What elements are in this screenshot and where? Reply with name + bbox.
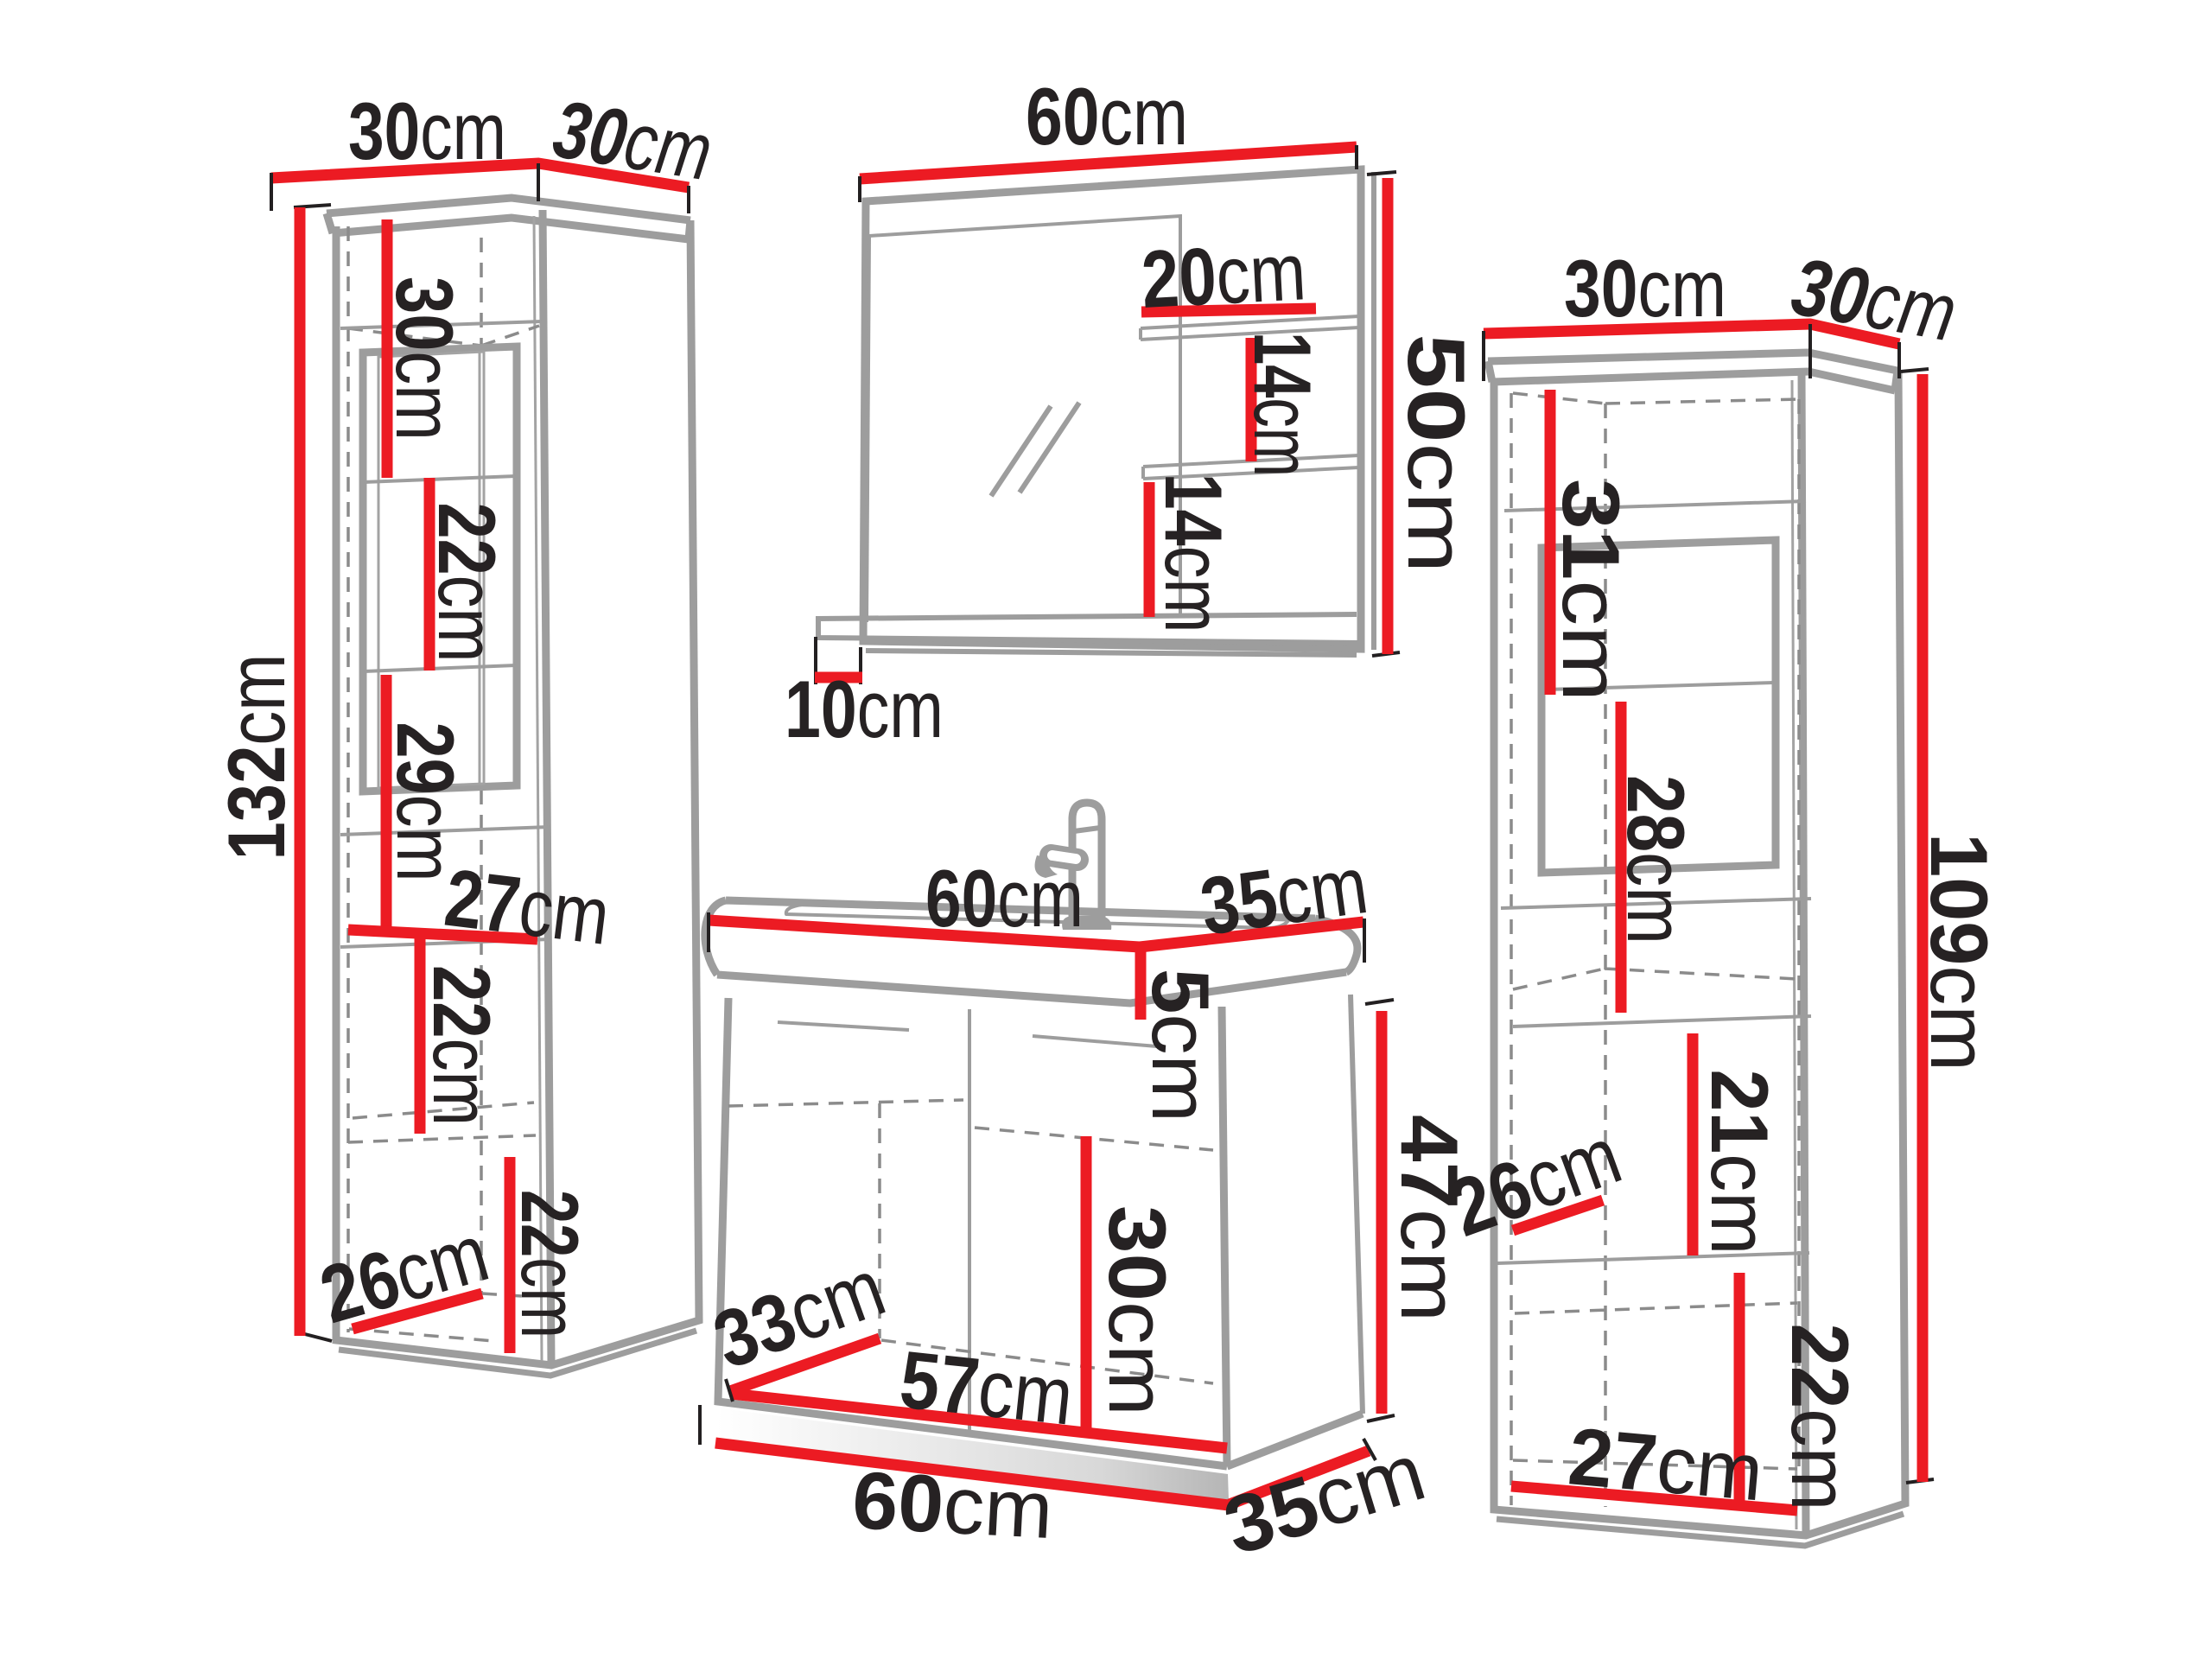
- svg-text:60cm: 60cm: [925, 853, 1084, 944]
- svg-text:50cm: 50cm: [1391, 334, 1482, 574]
- svg-text:60cm: 60cm: [850, 1454, 1055, 1555]
- svg-text:31cm: 31cm: [1546, 479, 1637, 702]
- svg-text:27cm: 27cm: [1565, 1410, 1766, 1517]
- svg-text:21cm: 21cm: [1694, 1070, 1785, 1255]
- svg-text:5cm: 5cm: [1135, 969, 1226, 1122]
- svg-text:28cm: 28cm: [1611, 775, 1701, 944]
- svg-text:20cm: 20cm: [1140, 226, 1308, 325]
- svg-text:10cm: 10cm: [785, 664, 944, 754]
- svg-text:22cm: 22cm: [505, 1190, 595, 1338]
- svg-text:22cm: 22cm: [1775, 1324, 1866, 1511]
- svg-text:30cm: 30cm: [379, 276, 470, 441]
- svg-text:60cm: 60cm: [1026, 71, 1188, 162]
- svg-text:14cm: 14cm: [1237, 332, 1328, 477]
- svg-text:22cm: 22cm: [422, 503, 512, 663]
- svg-text:30cm: 30cm: [348, 86, 506, 176]
- svg-text:132cm: 132cm: [211, 654, 302, 861]
- svg-text:30cm: 30cm: [1092, 1205, 1183, 1416]
- svg-text:109cm: 109cm: [1914, 833, 2005, 1071]
- svg-text:30cm: 30cm: [1564, 243, 1726, 334]
- svg-text:14cm: 14cm: [1148, 474, 1239, 633]
- svg-text:57cm: 57cm: [896, 1333, 1077, 1441]
- svg-text:22cm: 22cm: [416, 965, 507, 1126]
